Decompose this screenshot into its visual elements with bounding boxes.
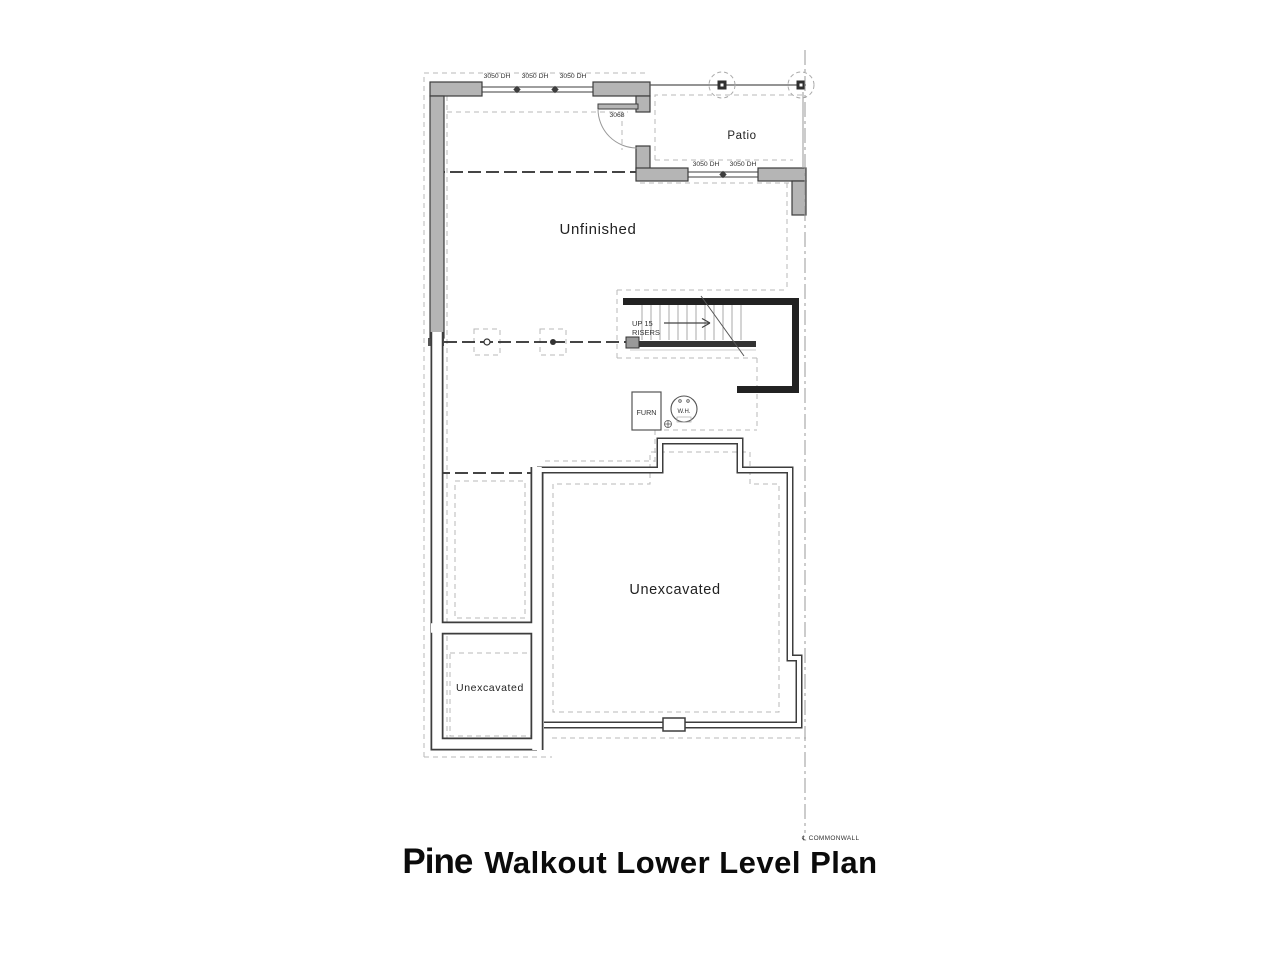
window-label-3: 3050 DH <box>560 73 587 80</box>
window-label-4: 3050 DH <box>693 161 720 168</box>
stair-label-line2: RISERS <box>632 328 660 337</box>
furnace-label: FURN <box>637 408 657 417</box>
plan-title-text: Walkout Lower Level Plan <box>484 845 877 881</box>
room-label-unexcavated-main: Unexcavated <box>629 582 720 598</box>
plan-title-logo: Pine <box>402 842 472 882</box>
room-label-unfinished: Unfinished <box>560 221 637 238</box>
room-label-patio: Patio <box>727 130 756 142</box>
patio-edge-lines <box>650 85 806 168</box>
room-label-unexcavated-small: Unexcavated <box>456 682 524 694</box>
plan-title: Pine Walkout Lower Level Plan <box>0 842 1280 882</box>
door-label: 3068 <box>609 112 624 119</box>
stairs <box>623 296 799 393</box>
floor-plan-page: Unfinished Patio Unexcavated Unexcavated… <box>0 0 1280 960</box>
water-heater-label: W.H. <box>678 409 691 415</box>
crawl-access-hatch <box>663 718 685 731</box>
entry-door <box>598 104 638 148</box>
window-label-2: 3050 DH <box>522 73 549 80</box>
beam-and-edge-dashed-lines <box>432 172 636 473</box>
window-label-5: 3050 DH <box>730 161 757 168</box>
window-label-1: 3050 DH <box>484 73 511 80</box>
commonwall-label: ℄ COMMONWALL <box>801 835 859 842</box>
footing-dashed-lines <box>424 73 806 757</box>
stair-label-line1: UP 15 <box>632 319 653 328</box>
floor-drain-icon <box>665 421 672 428</box>
floor-plan-svg: Unfinished Patio Unexcavated Unexcavated… <box>0 0 1280 960</box>
